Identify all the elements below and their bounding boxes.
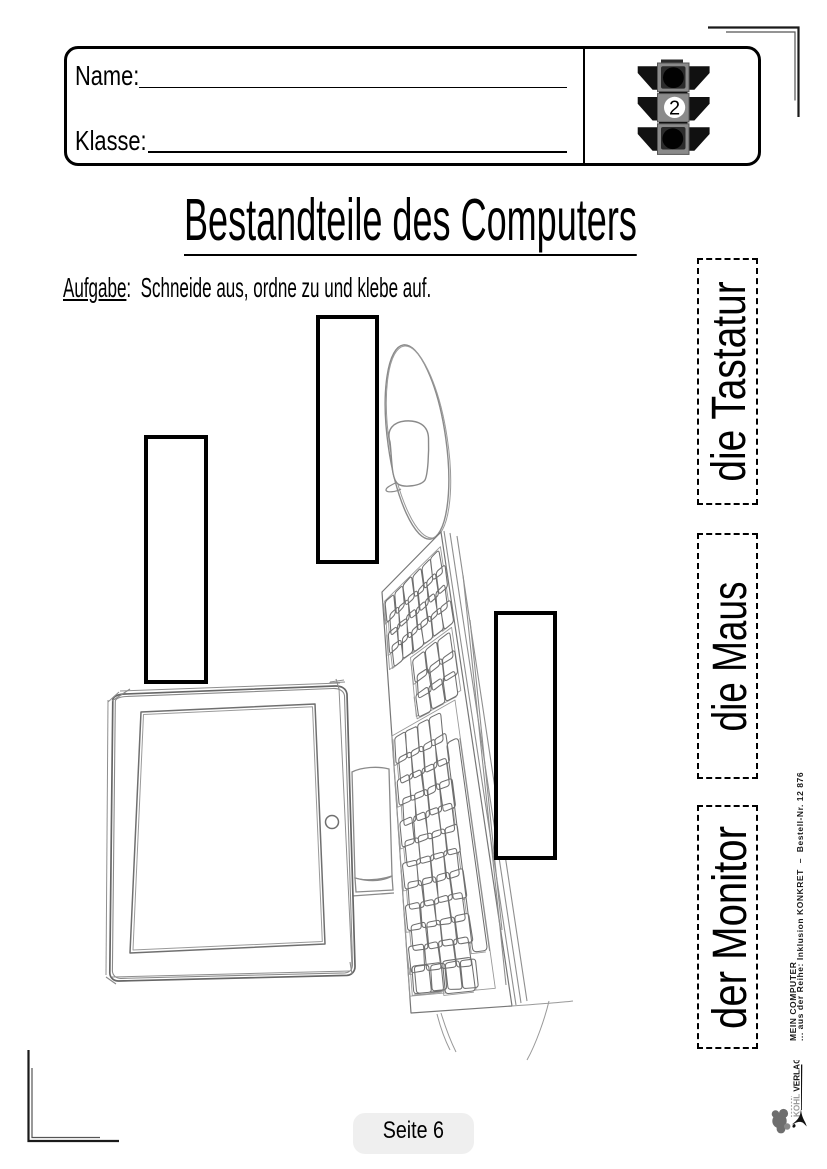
svg-text:KOHL VERLAG: KOHL VERLAG	[793, 1060, 802, 1117]
